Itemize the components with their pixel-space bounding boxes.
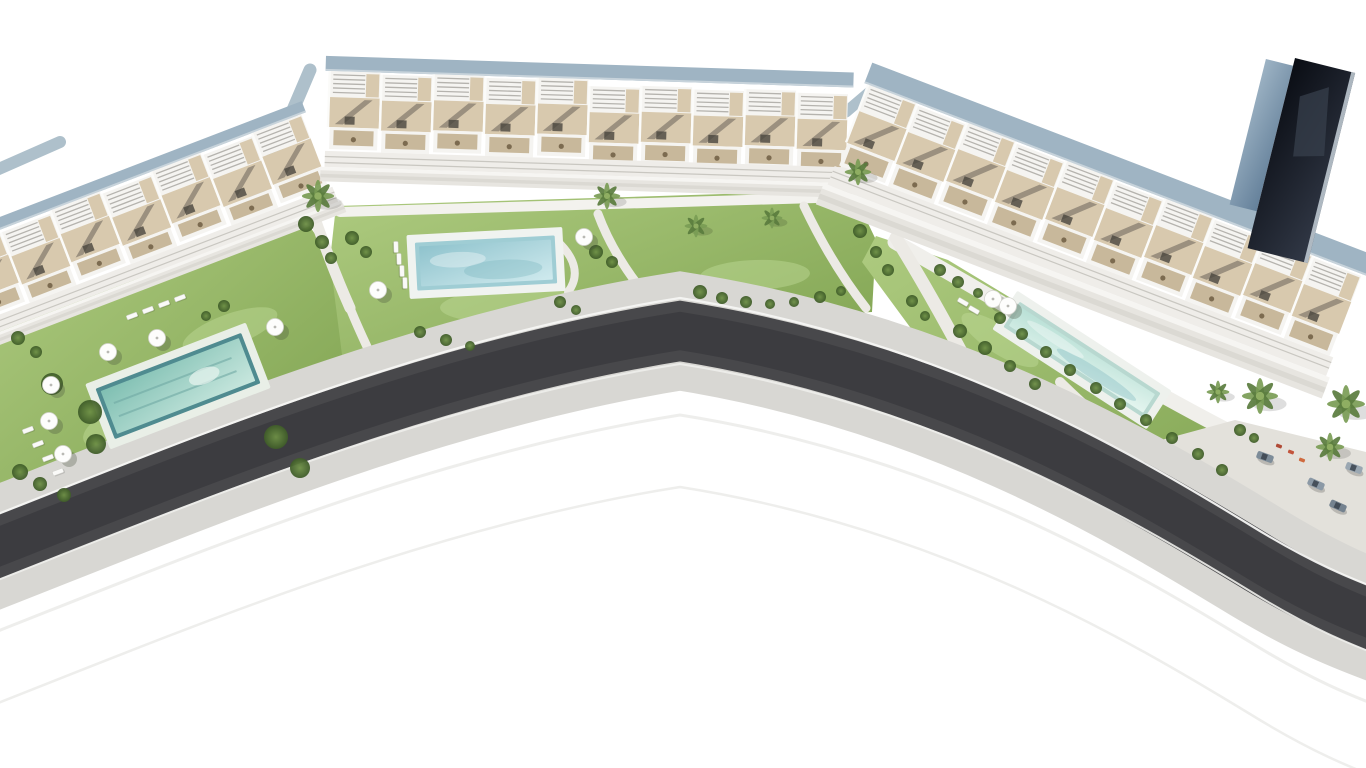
bush [1166,432,1178,444]
bush [1249,433,1259,443]
bush [920,311,930,321]
bush [325,252,337,264]
terrace-corner [625,89,639,112]
bush [882,264,894,276]
bush [765,299,775,309]
townhouse-unit [326,71,380,151]
middle-building [320,56,856,198]
bush [789,297,799,307]
bush [870,246,882,258]
bush [315,235,329,249]
palm-crown [1215,389,1220,394]
bush [298,216,314,232]
sun-lounger [395,253,401,265]
palm-crown [693,223,698,228]
bush [906,295,918,307]
townhouse-unit [430,74,484,154]
terrace-window [760,135,770,143]
terrace-corner [781,92,795,115]
palm-crown [604,193,610,199]
sun-lounger [398,265,404,277]
parasol-pole [156,337,159,340]
townhouse-unit [638,86,692,166]
terrace-window [656,131,666,139]
terrace-window [500,123,510,131]
parasol-pole [583,236,586,239]
townhouse-unit [742,89,796,169]
terrace-window [396,120,406,128]
lounger-bed [397,253,402,264]
parasol-pole [62,453,65,456]
parasol-pole [50,384,53,387]
bush [1216,464,1228,476]
bush [693,285,707,299]
palm-crown [1342,400,1351,409]
bush [1114,398,1126,410]
middle-pool [406,227,565,299]
bush [1004,360,1016,372]
parasol-pole [107,351,110,354]
bush [1029,378,1041,390]
parasol-pole [274,326,277,329]
palm-crown [855,169,861,175]
terrace-corner [574,81,588,104]
bush [1234,424,1246,436]
palm-crown [770,216,775,221]
lounger-bed [403,277,408,288]
bush [978,341,992,355]
townhouse-unit [378,75,432,155]
terrace-corner [470,77,484,100]
bush [440,334,452,346]
bush [853,224,867,238]
bush [571,305,581,315]
parasol-pole [1007,305,1010,308]
bush [12,464,28,480]
bush [973,288,983,298]
architectural-render [0,0,1366,768]
bush [57,488,71,502]
palm-crown [1256,392,1264,400]
bush [201,311,211,321]
bush [1192,448,1204,460]
terrace-corner [366,74,380,97]
terrace-window [448,120,458,128]
townhouse-unit [534,77,588,157]
bush [1140,414,1152,426]
terrace-window [552,123,562,131]
bush [606,256,618,268]
terrace-window [708,135,718,143]
townhouse-unit [482,78,536,158]
parasol-pole [48,420,51,423]
parasol-pole [992,298,995,301]
palm-crown [314,192,321,199]
bush [33,477,47,491]
bush [554,296,566,308]
bush [716,292,728,304]
bush [360,246,372,258]
bush [952,276,964,288]
bush [953,324,967,338]
bush [836,286,846,296]
palm-crown [1327,444,1334,451]
bush [1090,382,1102,394]
terrace-corner [418,78,432,101]
townhouse-unit [690,89,744,169]
bush [814,291,826,303]
lounger-bed [394,241,399,252]
sun-lounger [392,241,398,253]
bush [86,434,106,454]
terrace-window [344,116,354,124]
sun-lounger [401,277,407,289]
townhouse-unit [794,93,848,173]
parasol-pole [377,289,380,292]
bush [740,296,752,308]
bush [30,346,42,358]
bush [934,264,946,276]
bush [465,341,475,351]
lounger-bed [400,265,405,276]
bush [1064,364,1076,376]
terrace-window [604,132,614,140]
terrace-corner [833,96,847,119]
terrace-corner [729,93,743,116]
bush [264,425,288,449]
bush [11,331,25,345]
bush [1040,346,1052,358]
scene-canvas [0,0,1366,768]
bush [78,400,102,424]
bush [218,300,230,312]
bush [1016,328,1028,340]
bush [345,231,359,245]
bush [290,458,310,478]
terrace-corner [522,81,536,104]
terrace-corner [677,89,691,112]
terrace-window [812,138,822,146]
bush [414,326,426,338]
townhouse-unit [586,86,640,166]
